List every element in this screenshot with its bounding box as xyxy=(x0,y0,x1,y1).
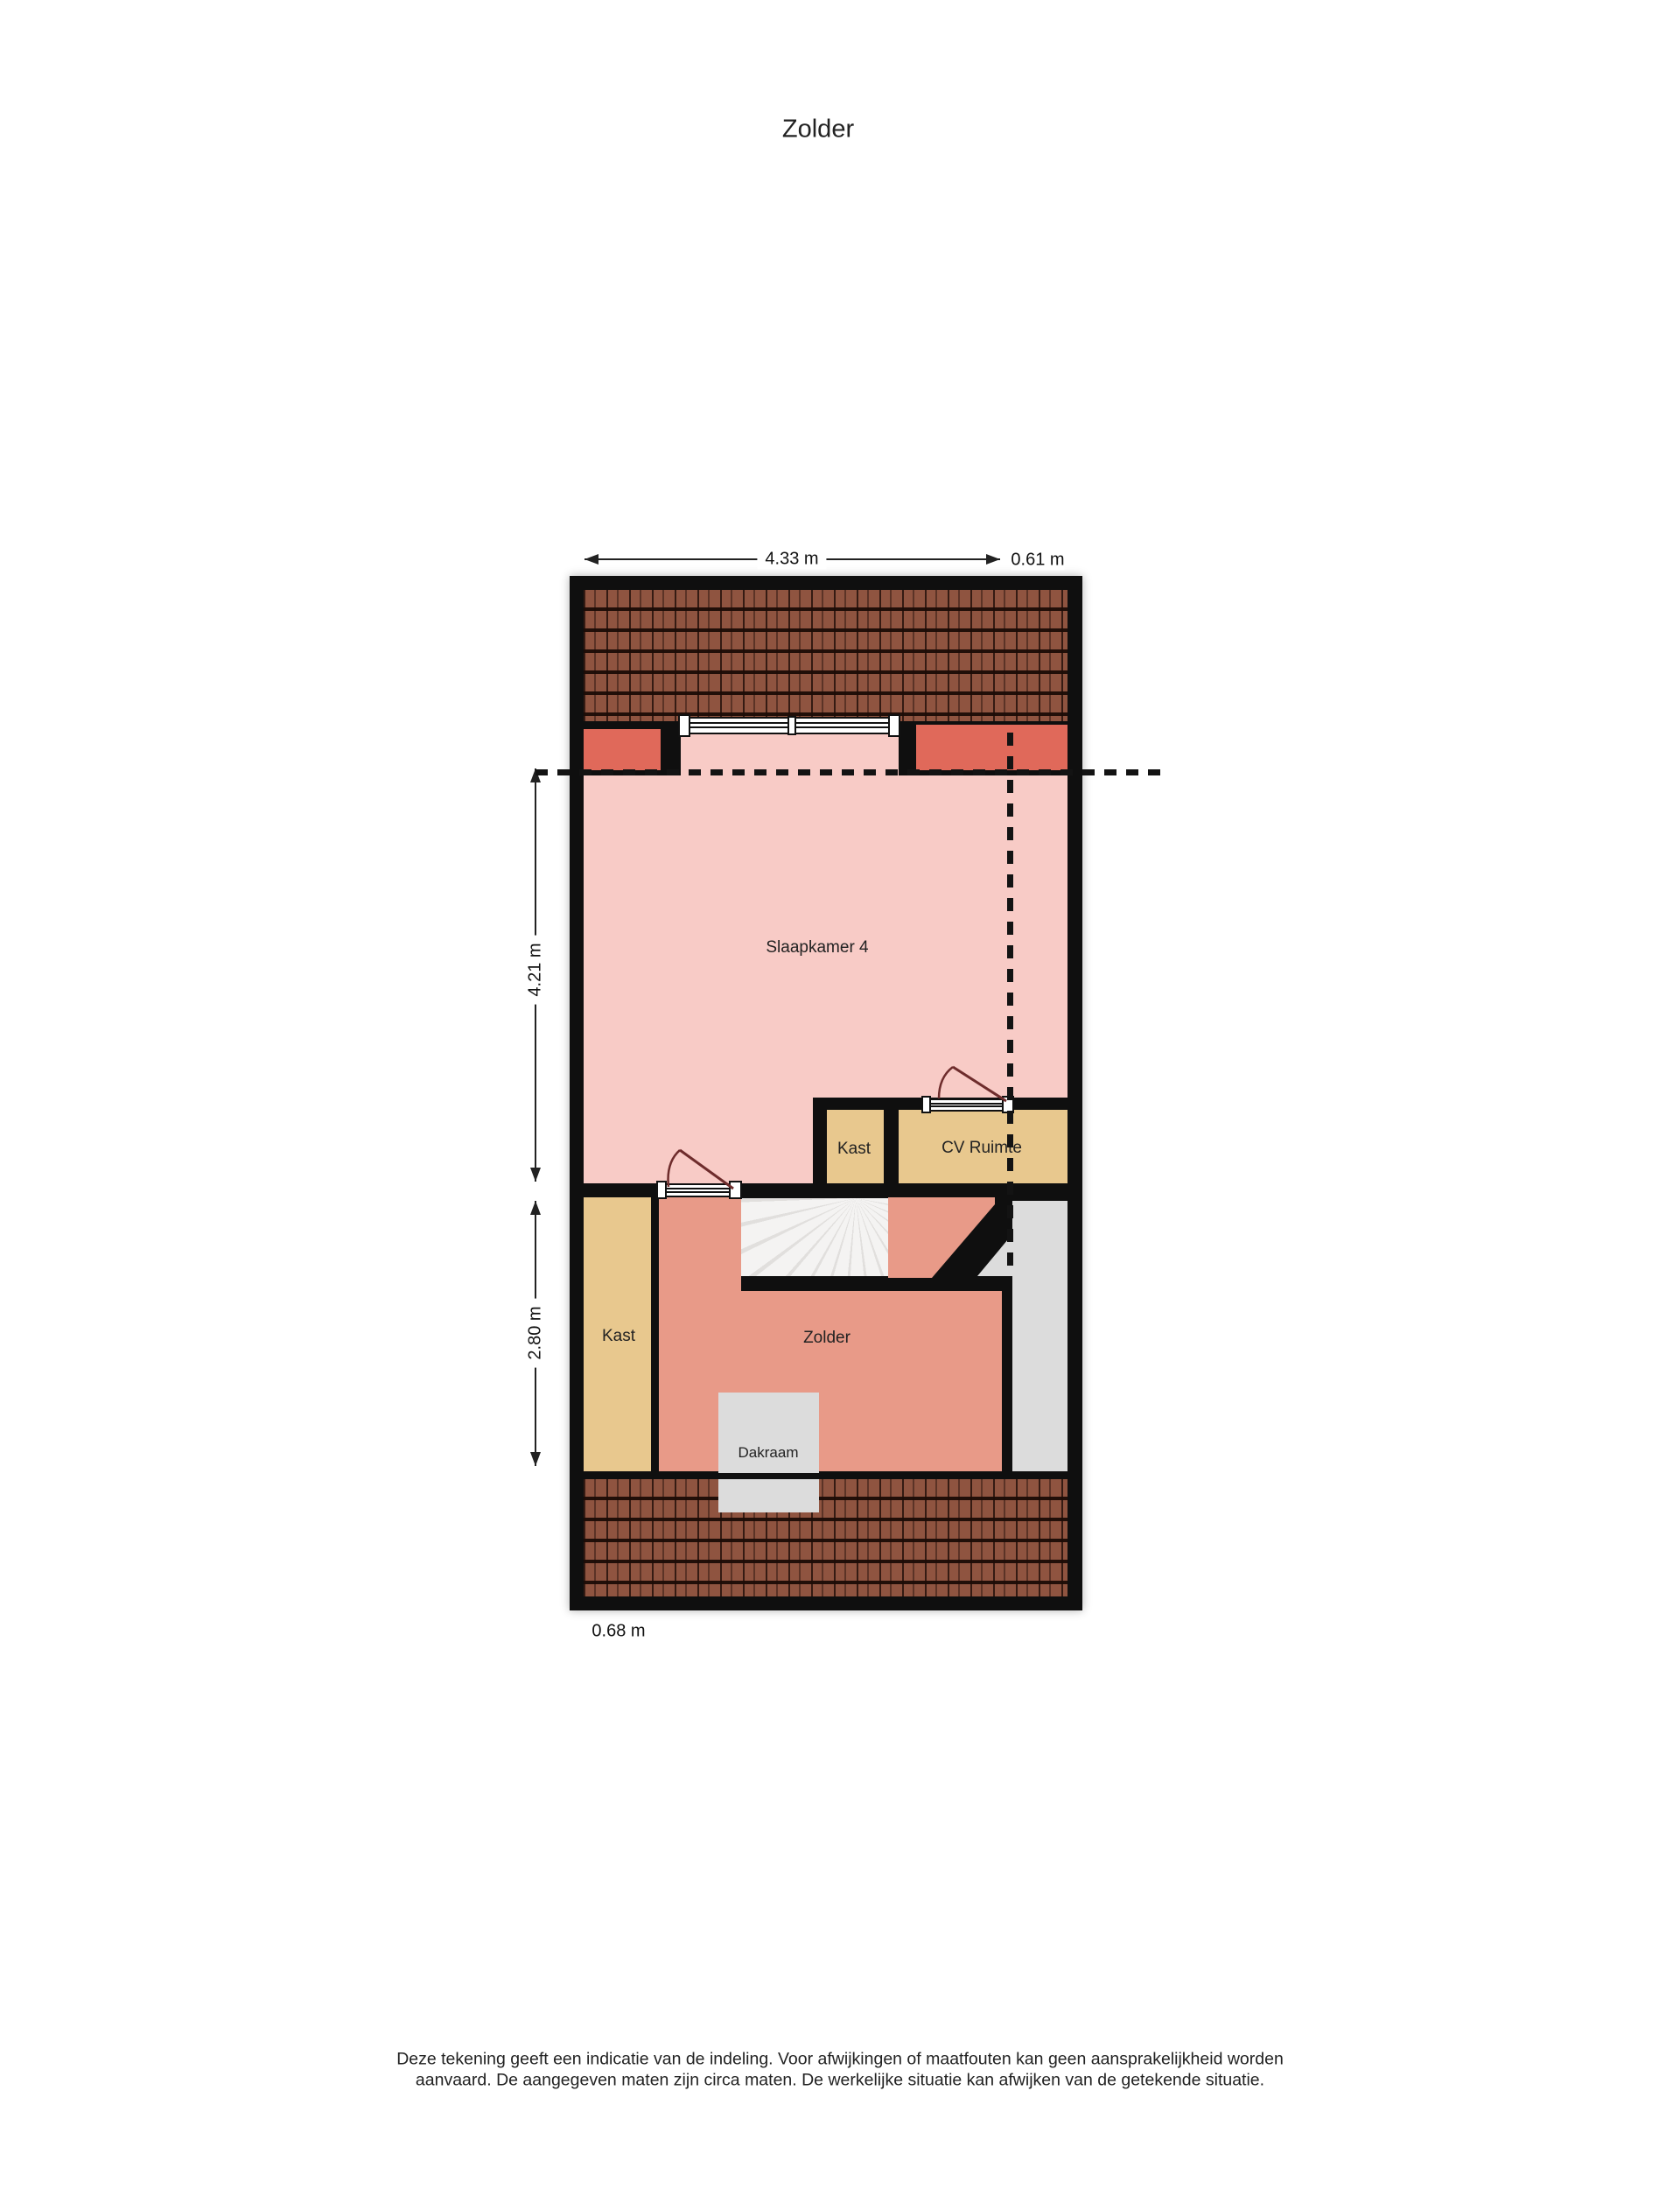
room-label-kast-upper: Kast xyxy=(837,1140,871,1159)
disclaimer-line-2: aanvaard. De aangegeven maten zijn circa… xyxy=(416,2071,1264,2091)
roof-tiles-top xyxy=(584,590,1067,721)
disclaimer-line-1: Deze tekening geeft een indicatie van de… xyxy=(396,2050,1284,2070)
room-label-dakraam: Dakraam xyxy=(738,1444,799,1462)
dimension-arrow-280-top xyxy=(530,1201,541,1215)
dimension-label-top-width: 4.33 m xyxy=(757,550,826,570)
stair-door-hinge xyxy=(729,1181,742,1199)
room-label-kast-lower: Kast xyxy=(602,1327,635,1346)
dimension-label-left-lower: 2.80 m xyxy=(526,1298,546,1367)
wall-line-over-dakraam xyxy=(718,1473,819,1479)
dormer-block-right xyxy=(916,725,1067,770)
dimension-label-top-extension: 0.61 m xyxy=(1011,551,1064,571)
page-title: Zolder xyxy=(782,116,854,144)
staircase xyxy=(741,1198,888,1276)
room-slaapkamer-lower-left xyxy=(584,1098,813,1183)
dimension-arrow-280-bottom xyxy=(530,1452,541,1466)
dormer-window-cap-left xyxy=(678,714,690,737)
section-line-horizontal xyxy=(535,769,1162,775)
dormer-window-mullion xyxy=(787,716,796,735)
floor-plan: Dakraam Slaapkamer 4 Kast CV Ruimte Kast… xyxy=(570,576,1082,1610)
dimension-label-bottom-offset: 0.68 m xyxy=(591,1622,645,1642)
dimension-arrow-421-bottom xyxy=(530,1168,541,1182)
dimension-arrow-top-right xyxy=(986,554,1000,565)
room-label-slaapkamer: Slaapkamer 4 xyxy=(766,938,868,958)
cv-door-frame xyxy=(923,1098,1004,1112)
dormer-window-cap-right xyxy=(888,714,900,737)
roof-tiles-bottom xyxy=(584,1479,1067,1596)
cv-door-cap xyxy=(921,1096,931,1113)
dimension-arrow-top-left xyxy=(584,554,598,565)
dimension-label-left-upper: 4.21 m xyxy=(526,935,546,1004)
floorplan-page: { "title": "Zolder", "floorplan": { "dim… xyxy=(0,0,1680,2189)
room-stair-pocket xyxy=(888,1197,1002,1291)
dormer-block-left xyxy=(584,729,661,770)
void-strip-right xyxy=(1012,1201,1067,1471)
room-label-zolder: Zolder xyxy=(803,1329,850,1348)
room-slaapkamer-main xyxy=(584,775,1067,1098)
section-line-vertical xyxy=(1007,733,1013,1267)
stair-door-cap xyxy=(656,1181,667,1199)
